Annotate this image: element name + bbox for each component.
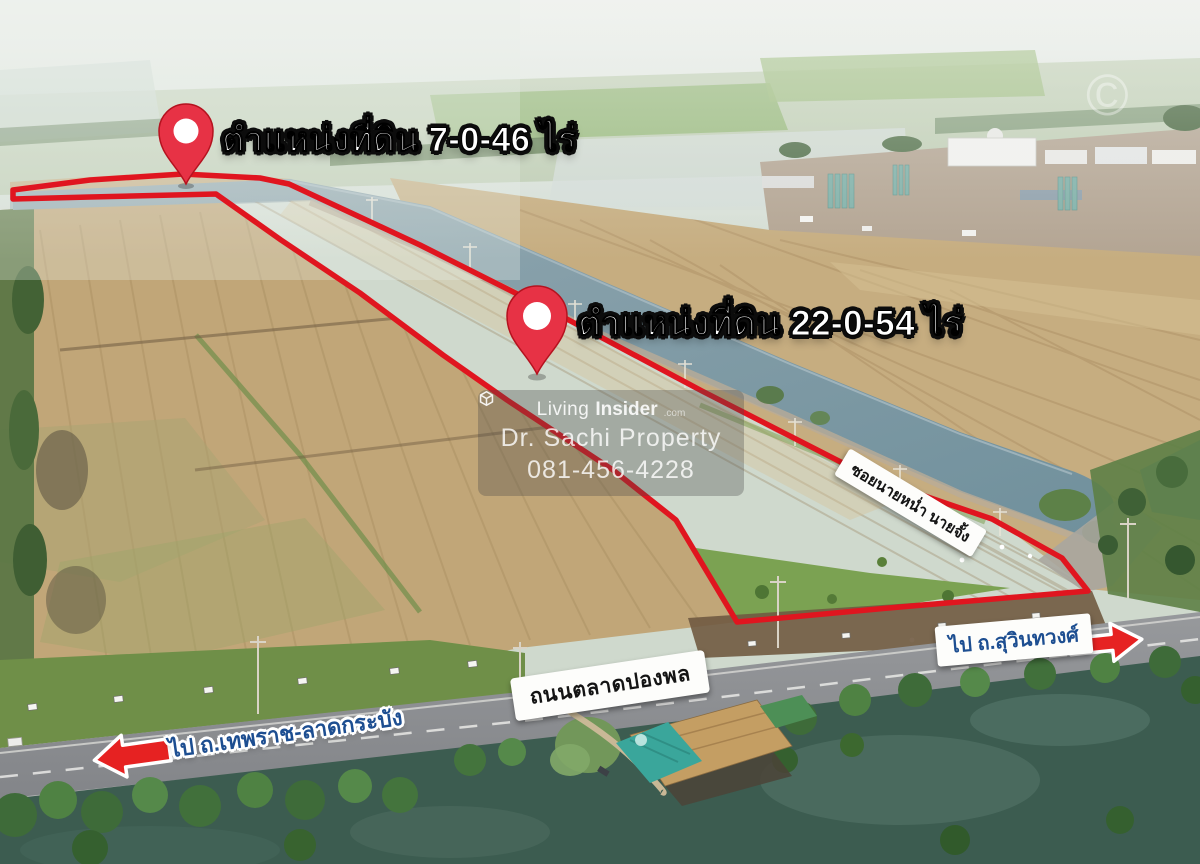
aerial-photo: ตำแหน่งที่ดิน 7-0-46 ไร่ ตำแหน่งที่ดิน 2… [0, 0, 1200, 864]
watermark-brand: LivingInsider.com [478, 399, 744, 421]
watermark-brand-prefix: Living [537, 399, 590, 421]
livinginsider-logo-icon [478, 390, 495, 407]
watermark: LivingInsider.com Dr. Sachi Property 081… [478, 390, 744, 496]
parcel-1-label: ตำแหน่งที่ดิน 7-0-46 ไร่ [222, 112, 577, 166]
watermark-brand-suffix: Insider [595, 399, 657, 421]
copyright-mark: © [1086, 62, 1129, 129]
watermark-brand-tld: .com [664, 408, 686, 419]
watermark-agent-name: Dr. Sachi Property [478, 424, 744, 453]
parcel-2-label: ตำแหน่งที่ดิน 22-0-54 ไร่ [578, 296, 963, 351]
watermark-phone: 081-456-4228 [478, 456, 744, 485]
location-pin-2-icon [507, 286, 567, 381]
